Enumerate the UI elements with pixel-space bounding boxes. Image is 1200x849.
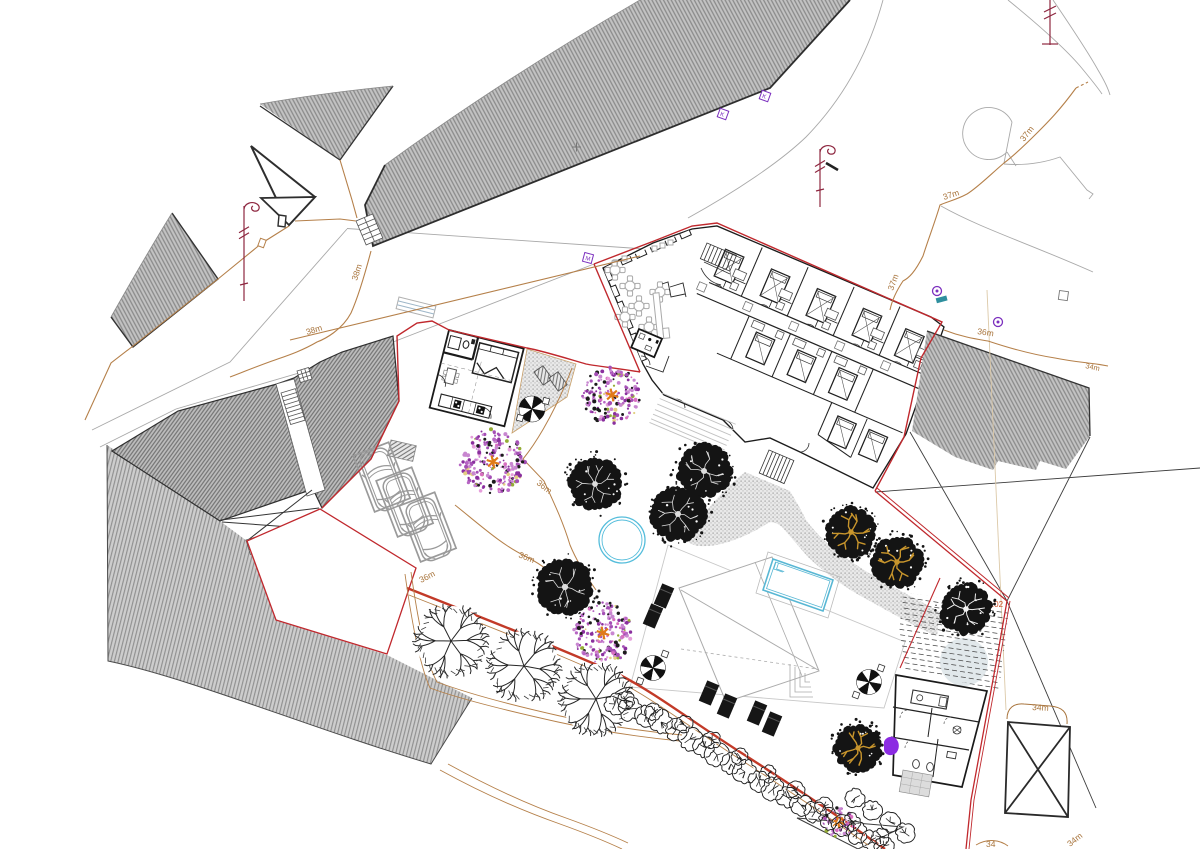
svg-text:34m: 34m: [1032, 702, 1049, 713]
